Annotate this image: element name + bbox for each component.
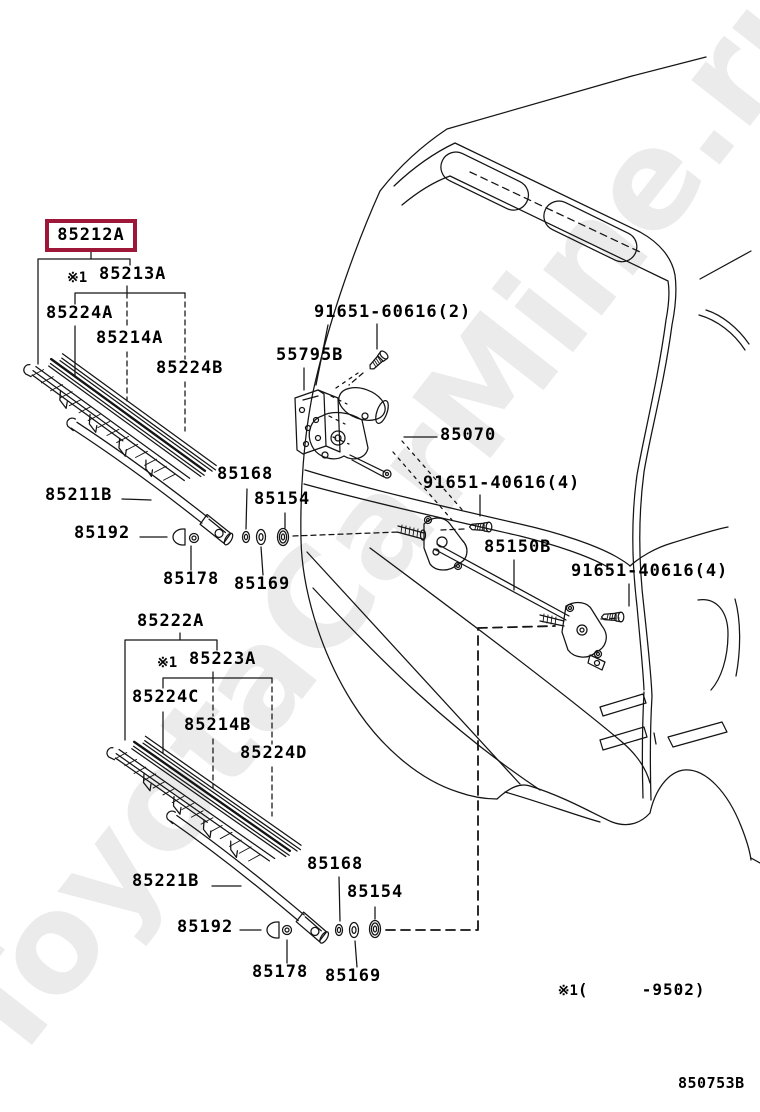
grommet-icon: [278, 529, 289, 546]
part-label: 85212A: [57, 227, 124, 244]
part-label-screw-motor[interactable]: 91651-60616(2): [314, 304, 471, 321]
nut-icon: [190, 534, 199, 543]
washer-icon: [350, 923, 359, 938]
bolt-icon: [367, 350, 390, 373]
roof-vent-2: [539, 196, 642, 267]
part-label-washer-inner-upper[interactable]: 85168: [217, 466, 273, 483]
part-label-grommet-lower[interactable]: 85154: [347, 884, 403, 901]
applicability-footnote: ※1( -9502): [524, 968, 705, 1012]
motor-bracket: [295, 390, 340, 454]
part-label-backing-a-upper[interactable]: 85224A: [46, 305, 113, 322]
part-label-blade-lower[interactable]: 85223A: [189, 651, 256, 668]
part-label-screw-pivot-2[interactable]: 91651-40616(4): [571, 563, 728, 580]
footnote-range: ( -9502): [578, 980, 706, 999]
parts-diagram-canvas: ToyotaCarMine.ru: [0, 0, 760, 1112]
part-label-arm-lower[interactable]: 85221B: [132, 873, 199, 890]
part-label-washer-inner-lower[interactable]: 85168: [307, 856, 363, 873]
upper-small-parts: [173, 529, 289, 546]
footnote-marker: ※1: [558, 983, 578, 999]
bolt-icon: [470, 522, 492, 532]
part-label-screw-pivot-1[interactable]: 91651-40616(4): [423, 475, 580, 492]
footnote-marker: ※1: [67, 271, 87, 285]
bolt-icon: [602, 612, 624, 622]
cap-icon: [173, 529, 185, 545]
cap-icon: [267, 922, 279, 938]
part-label-nut-upper[interactable]: 85178: [163, 571, 219, 588]
part-label-washer-outer-lower[interactable]: 85169: [325, 968, 381, 985]
van-body-outline: [301, 57, 760, 863]
part-label-cap-lower[interactable]: 85192: [177, 919, 233, 936]
part-label-arm-upper[interactable]: 85211B: [45, 487, 112, 504]
part-label-nut-lower[interactable]: 85178: [252, 964, 308, 981]
diagram-svg: [0, 0, 760, 1112]
figure-code: 850753B: [678, 1076, 745, 1091]
part-label-grommet-upper[interactable]: 85154: [254, 491, 310, 508]
nut-icon: [283, 926, 292, 935]
part-label-link[interactable]: 85150B: [484, 539, 551, 556]
part-label-rubber-lower[interactable]: 85214B: [184, 717, 251, 734]
part-label-rubber-upper[interactable]: 85214A: [96, 330, 163, 347]
wiper-motor: [309, 382, 391, 478]
part-label-motor[interactable]: 85070: [440, 427, 496, 444]
pivot-right: [540, 603, 606, 670]
grommet-icon: [370, 921, 381, 938]
part-label-washer-outer-upper[interactable]: 85169: [234, 576, 290, 593]
part-label-backing-a-lower[interactable]: 85224C: [132, 689, 199, 706]
washer-icon: [336, 925, 343, 936]
part-label-backing-b-upper[interactable]: 85224B: [156, 360, 223, 377]
part-label-cap-upper[interactable]: 85192: [74, 525, 130, 542]
part-label-bracket[interactable]: 55795B: [276, 347, 343, 364]
pivot-left: [397, 517, 467, 571]
part-label-blade-assy-lower[interactable]: 85222A: [137, 613, 204, 630]
part-label-blade-upper[interactable]: 85213A: [99, 266, 166, 283]
selected-part-highlight[interactable]: 85212A: [45, 219, 137, 252]
footnote-marker: ※1: [157, 656, 177, 670]
part-label-backing-b-lower[interactable]: 85224D: [240, 745, 307, 762]
washer-icon: [257, 530, 266, 545]
washer-icon: [243, 532, 250, 543]
